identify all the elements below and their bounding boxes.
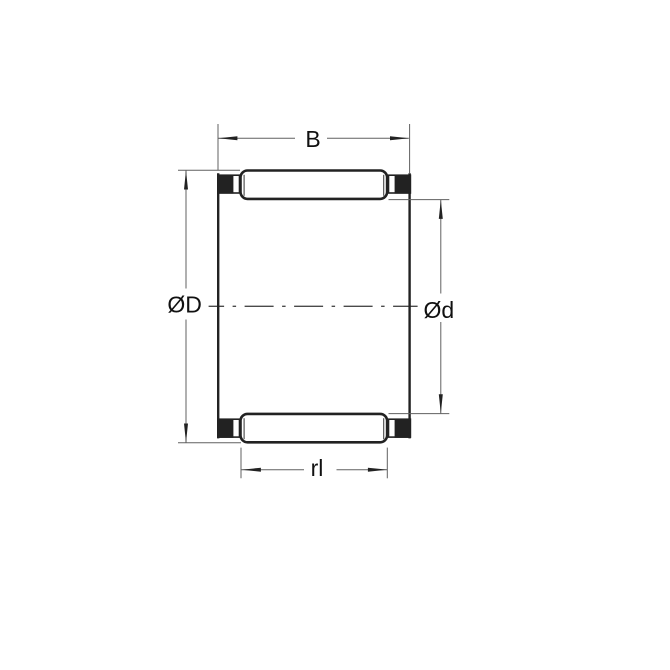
svg-text:rl: rl: [311, 455, 324, 481]
svg-text:Ød: Ød: [424, 297, 455, 323]
svg-text:B: B: [305, 126, 320, 152]
svg-text:ØD: ØD: [167, 291, 202, 317]
